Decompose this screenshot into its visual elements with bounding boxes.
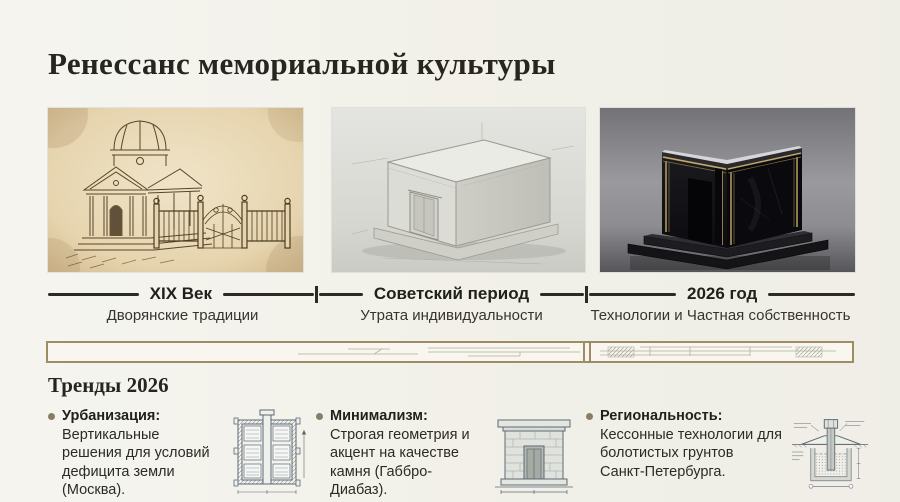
timeline-era-soviet: Советский период xyxy=(319,284,585,304)
caisson-section-blueprint-icon xyxy=(790,408,870,501)
era-sublabel: Технологии и Частная собственность xyxy=(586,307,855,324)
timeline-tick xyxy=(315,286,318,303)
timeline-tick xyxy=(585,286,588,303)
era-image-19th-century xyxy=(48,108,303,272)
timeline-line xyxy=(48,293,139,296)
timeline-line xyxy=(768,293,855,296)
timeline-axis: XIX Век Советский период 2026 год xyxy=(48,283,855,305)
page-title: Ренессанс мемориальной культуры xyxy=(48,46,556,82)
trend-text: Урбанизация: Вертикальные решения для ус… xyxy=(62,407,220,500)
trend-text: Минимализм: Строгая геометрия и акцент н… xyxy=(330,407,482,500)
era-sublabel: Утрата индивидуальности xyxy=(317,307,586,324)
trend-label: Минимализм: xyxy=(330,408,428,424)
trend-text: Региональность: Кессонные технологии для… xyxy=(600,407,782,481)
timeline-sublabels: Дворянские традиции Утрата индивидуально… xyxy=(48,307,855,324)
era-image-soviet-period xyxy=(332,108,585,272)
trend-item-regionality: Региональность: Кессонные технологии для… xyxy=(586,407,870,501)
era-sublabel: Дворянские традиции xyxy=(48,307,317,324)
timeline-line xyxy=(319,293,363,296)
era-label: Советский период xyxy=(374,284,529,304)
timeline: XIX Век Советский период 2026 год Дворян… xyxy=(48,283,855,324)
trend-description: Строгая геометрия и акцент на качестве к… xyxy=(330,427,470,499)
era-label: XIX Век xyxy=(150,284,212,304)
timeline-line xyxy=(540,293,584,296)
trend-label: Региональность: xyxy=(600,408,722,424)
timeline-line xyxy=(223,293,314,296)
bullet-icon xyxy=(48,413,55,420)
era-label: 2026 год xyxy=(687,284,757,304)
mausoleum-facade-blueprint-icon xyxy=(492,408,576,501)
bullet-icon xyxy=(586,413,593,420)
infographic-canvas: Ренессанс мемориальной культуры xyxy=(0,0,900,502)
trend-label: Урбанизация: xyxy=(62,408,160,424)
era-images-row xyxy=(48,108,855,272)
trend-description: Кессонные технологии для болотистых грун… xyxy=(600,427,782,480)
era-image-2026 xyxy=(600,108,855,272)
trend-item-minimalism: Минимализм: Строгая геометрия и акцент н… xyxy=(316,407,576,501)
timeline-era-19th-century: XIX Век xyxy=(48,284,314,304)
timeline-era-2026: 2026 год xyxy=(589,284,855,304)
trend-item-urbanization: Урбанизация: Вертикальные решения для ус… xyxy=(48,407,308,501)
bullet-icon xyxy=(316,413,323,420)
trends-heading: Тренды 2026 xyxy=(48,373,169,398)
trend-description: Вертикальные решения для условий дефицит… xyxy=(62,427,210,499)
columbarium-blueprint-icon xyxy=(228,408,308,501)
timeline-line xyxy=(589,293,676,296)
decorative-blueprint-strip xyxy=(46,341,854,363)
